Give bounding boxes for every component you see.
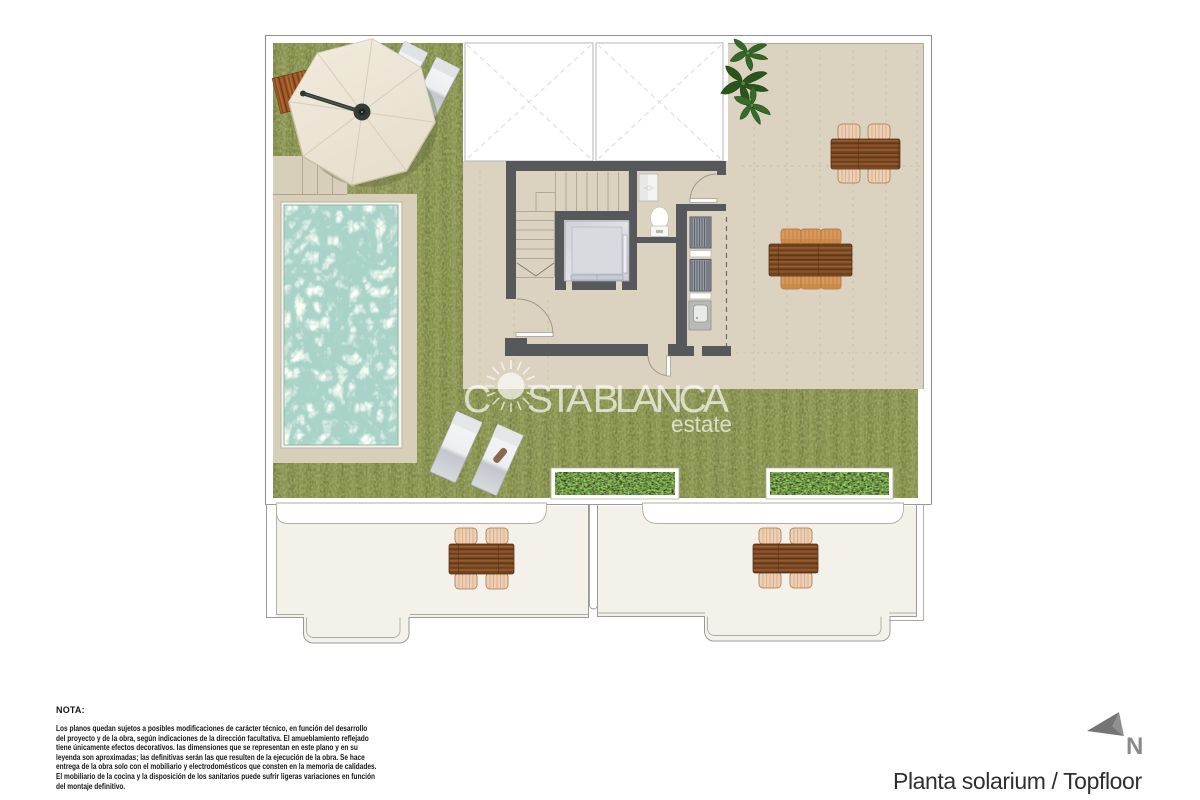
svg-text:estate: estate [671, 411, 732, 437]
svg-text:N: N [1126, 733, 1143, 760]
svg-text:C: C [463, 378, 493, 421]
